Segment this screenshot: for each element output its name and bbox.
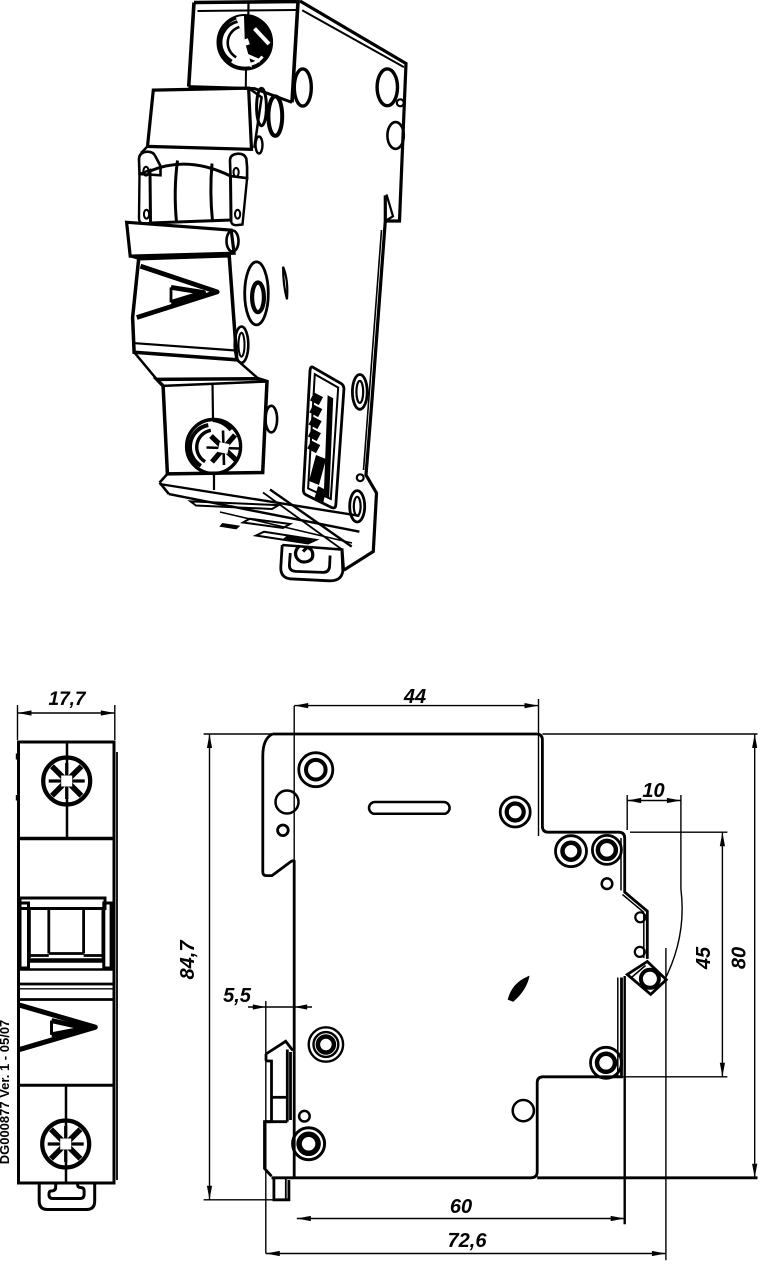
svg-text:84,7: 84,7 bbox=[177, 940, 199, 980]
svg-text:10: 10 bbox=[642, 780, 664, 802]
svg-text:17,7: 17,7 bbox=[48, 689, 87, 710]
svg-text:DG000877 Ver. 1 - 05/07: DG000877 Ver. 1 - 05/07 bbox=[0, 1020, 12, 1165]
svg-text:44: 44 bbox=[403, 686, 426, 708]
svg-text:72,6: 72,6 bbox=[447, 1230, 487, 1252]
svg-text:60: 60 bbox=[450, 1196, 472, 1218]
svg-text:5,5: 5,5 bbox=[223, 985, 252, 1007]
svg-text:80: 80 bbox=[729, 947, 751, 969]
svg-text:45: 45 bbox=[693, 946, 715, 970]
